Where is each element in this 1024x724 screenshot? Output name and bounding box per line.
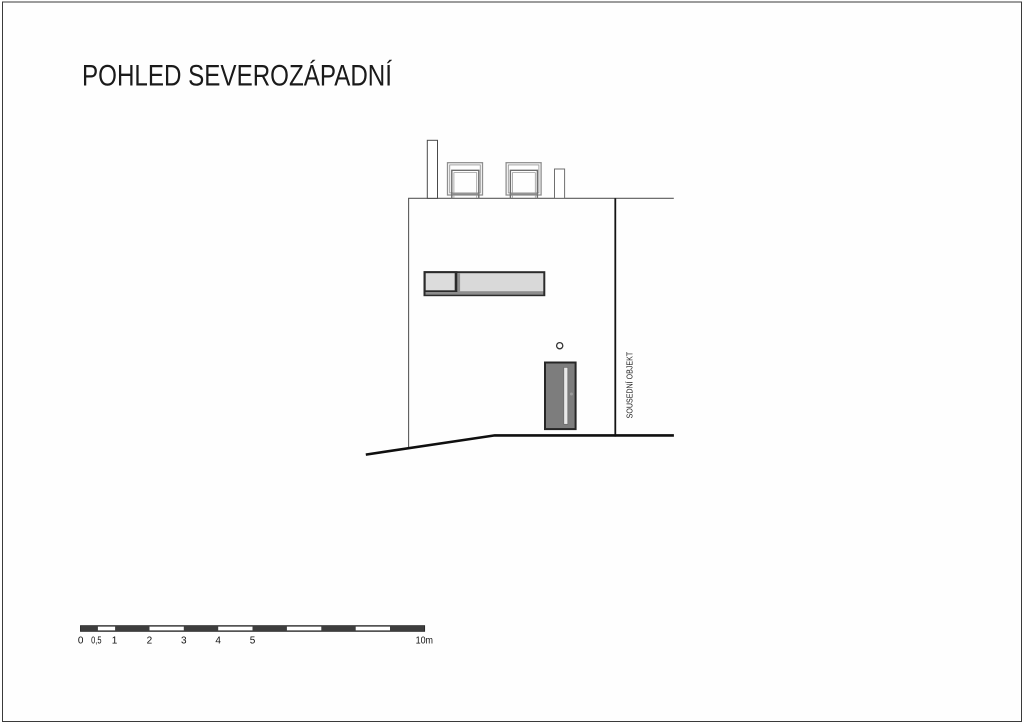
svg-text:POHLED SEVEROZÁPADNÍ: POHLED SEVEROZÁPADNÍ (82, 60, 393, 93)
svg-text:0,5: 0,5 (91, 635, 102, 646)
svg-text:3: 3 (181, 635, 187, 646)
svg-text:1: 1 (112, 635, 118, 646)
svg-text:SOUSEDNÍ OBJEKT: SOUSEDNÍ OBJEKT (626, 352, 635, 419)
svg-text:0: 0 (78, 635, 84, 646)
svg-text:4: 4 (215, 635, 221, 646)
svg-text:2: 2 (147, 635, 153, 646)
svg-text:10m: 10m (416, 635, 433, 646)
svg-text:5: 5 (250, 635, 256, 646)
